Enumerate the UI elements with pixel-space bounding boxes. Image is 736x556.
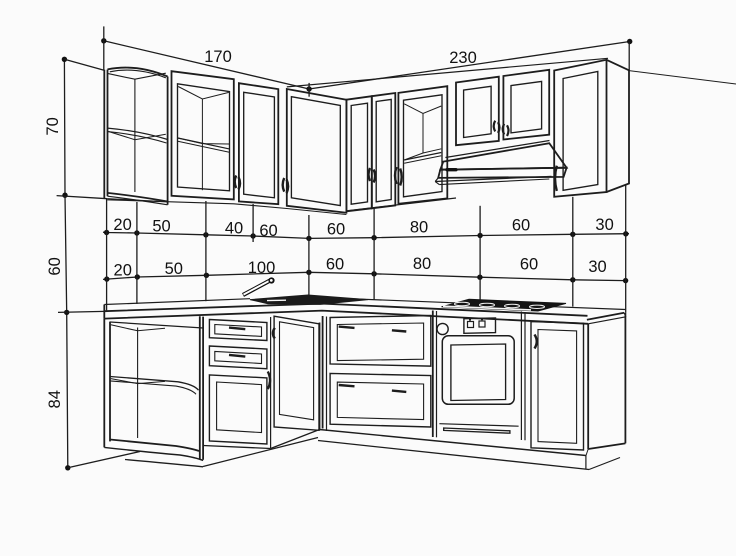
svg-text:30: 30 — [595, 216, 613, 234]
svg-text:60: 60 — [259, 222, 277, 240]
svg-text:230: 230 — [449, 49, 477, 67]
svg-text:60: 60 — [520, 256, 538, 274]
svg-text:70: 70 — [44, 117, 62, 135]
svg-text:60: 60 — [326, 256, 344, 274]
svg-text:20: 20 — [114, 262, 132, 280]
svg-text:20: 20 — [113, 216, 131, 234]
svg-text:40: 40 — [225, 220, 243, 238]
svg-text:60: 60 — [46, 257, 64, 275]
svg-text:30: 30 — [588, 258, 606, 276]
svg-text:80: 80 — [413, 255, 431, 273]
svg-text:80: 80 — [410, 219, 428, 237]
svg-text:50: 50 — [152, 218, 170, 236]
svg-text:60: 60 — [327, 221, 345, 239]
svg-text:100: 100 — [248, 259, 276, 277]
svg-text:84: 84 — [46, 390, 64, 408]
svg-text:50: 50 — [165, 260, 183, 278]
svg-text:170: 170 — [204, 48, 232, 66]
svg-text:60: 60 — [512, 217, 530, 235]
